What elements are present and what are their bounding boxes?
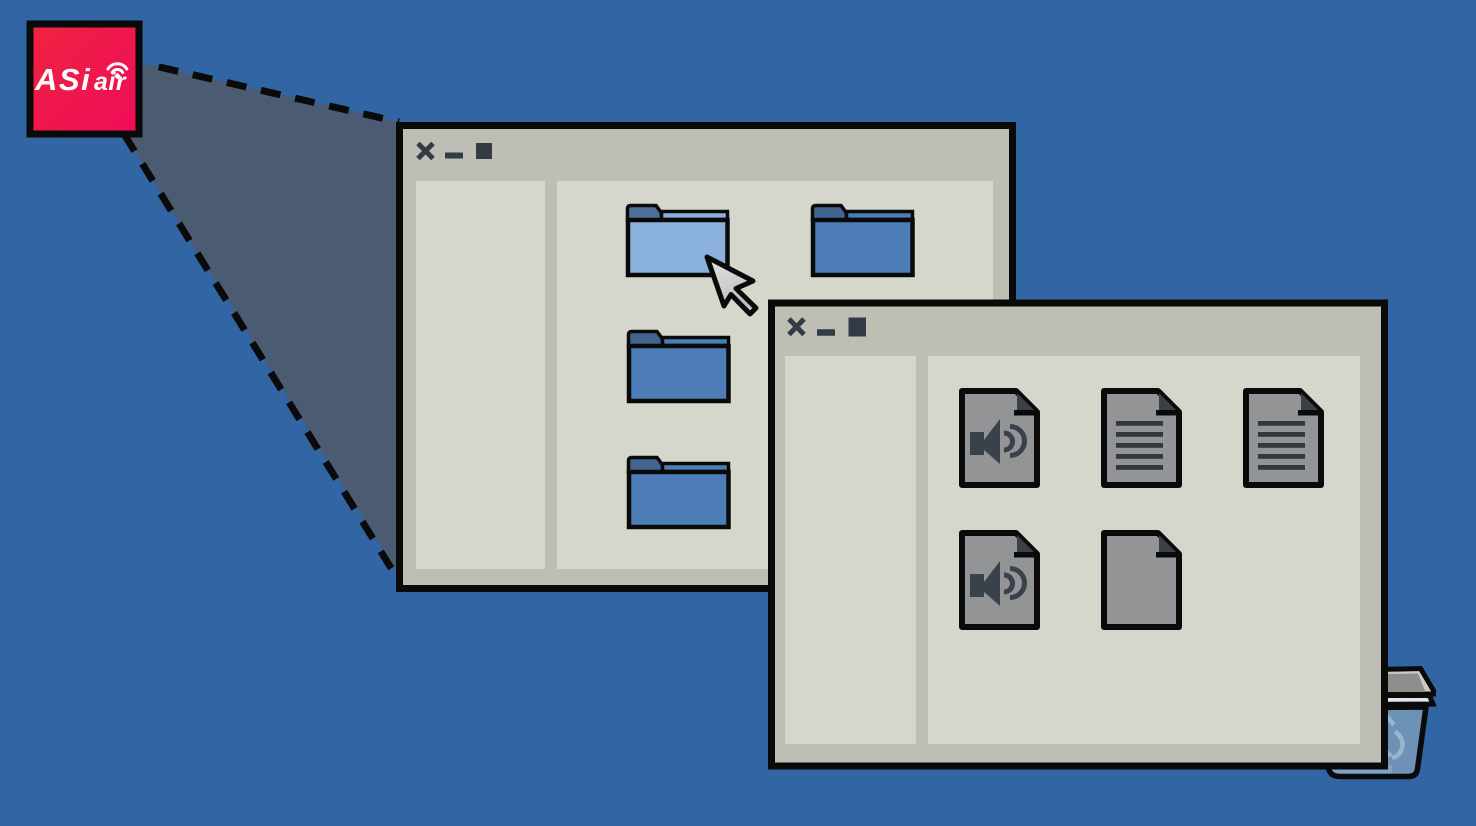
svg-text:ASi: ASi: [34, 62, 91, 97]
